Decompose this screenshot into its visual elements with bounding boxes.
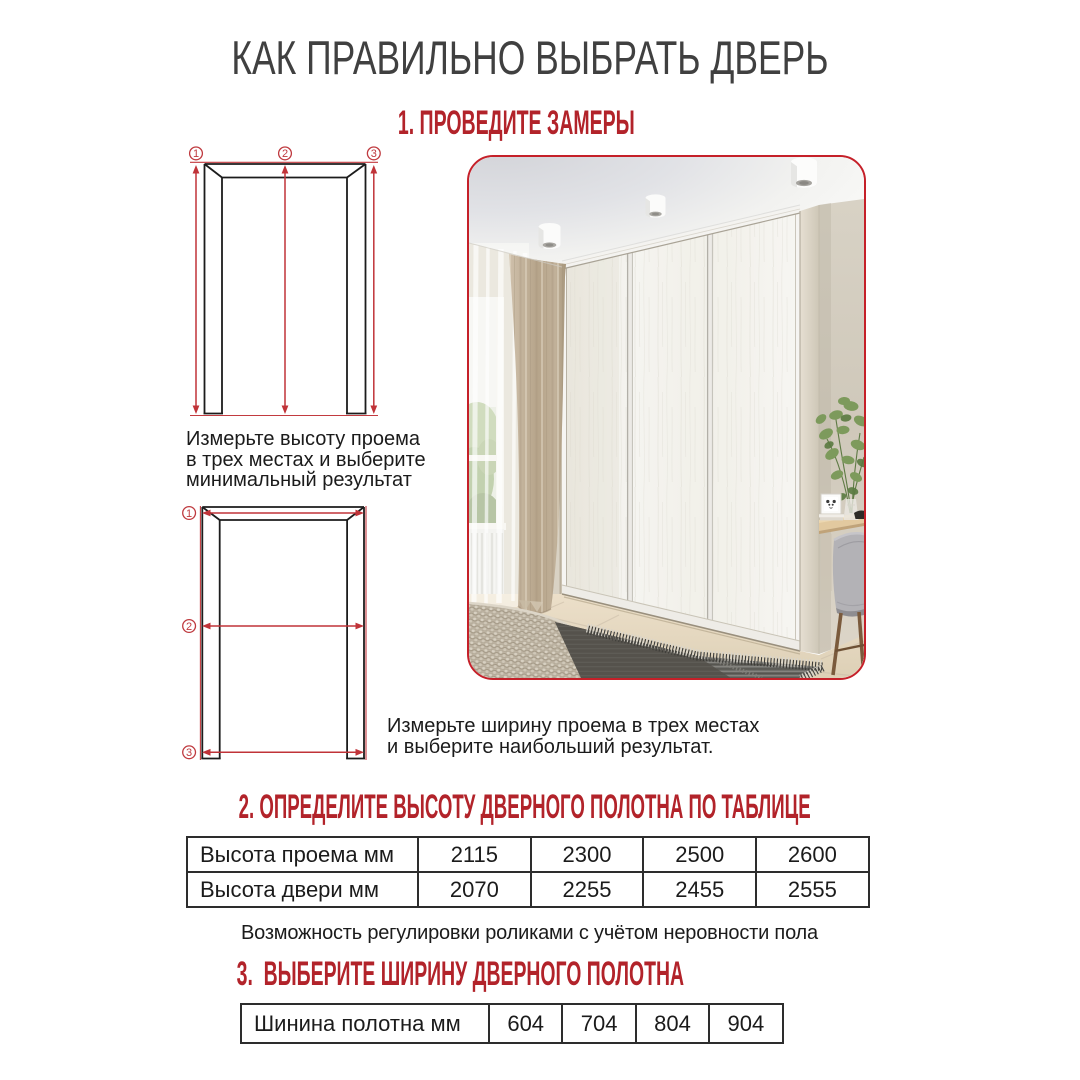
- svg-text:1: 1: [186, 508, 192, 520]
- svg-text:3: 3: [186, 747, 192, 759]
- svg-text:2: 2: [282, 148, 288, 160]
- svg-text:1: 1: [193, 148, 199, 160]
- svg-text:2: 2: [186, 621, 192, 633]
- svg-text:3: 3: [371, 148, 377, 160]
